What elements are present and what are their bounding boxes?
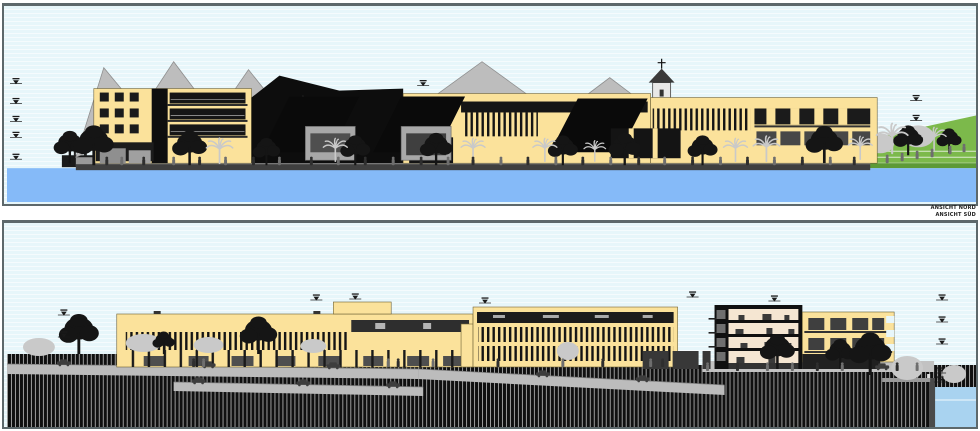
elevation-sheet: ANSICHT NORD ANSICHT SÜD — [0, 0, 980, 431]
south-elevation-drawing — [4, 223, 976, 427]
panel-label-south: ANSICHT SÜD — [856, 212, 976, 219]
section-cut-building — [709, 305, 803, 369]
sheet-labels: ANSICHT NORD ANSICHT SÜD — [856, 205, 976, 219]
elevation-south-panel — [2, 220, 978, 429]
water — [7, 168, 976, 202]
panel-label-north: ANSICHT NORD — [856, 205, 976, 212]
balcony-openings — [168, 93, 248, 138]
elevation-north-panel — [2, 3, 978, 206]
long-low-building — [117, 302, 473, 367]
north-elevation-drawing — [4, 6, 976, 204]
facade-block-left — [94, 89, 252, 164]
